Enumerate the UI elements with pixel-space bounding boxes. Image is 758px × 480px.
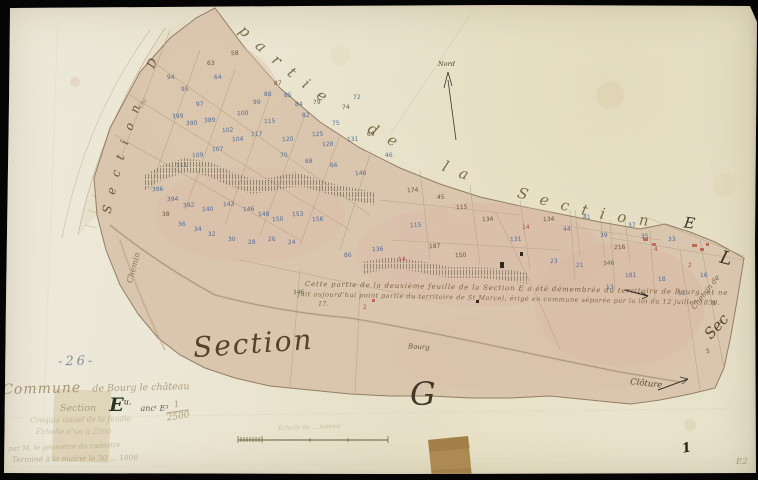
parcel-number: 390 [186,120,198,127]
parcel-number: 104 [232,136,244,143]
tape-patch [428,436,472,479]
parcel-number: 346 [293,289,305,296]
parcel-number: 150 [272,216,284,223]
parcel-number: 75 [332,120,340,127]
parcel-number: 187 [429,243,441,250]
parcel-number: 150 [455,252,467,259]
parcel-number: 69 [367,131,375,138]
scale-bar [238,436,388,443]
parcel-number: 181 [625,272,637,279]
parcel-number: 82 [302,112,310,119]
parcel-number: 64 [214,74,222,81]
parcel-number: 174 [407,187,419,194]
north-arrow [444,72,456,140]
parcel-number: 131 [510,236,522,243]
parcel-number: 68 [305,158,313,165]
north-label: Nord [438,61,455,68]
page-number: -26- [58,355,96,369]
parcel-number: 11 [678,290,686,297]
aged-paper-sheet: partie de la Section Section D Nord Sect… [0,0,758,480]
parcel-number: 9 [712,300,716,307]
parcel-number: 148 [258,211,270,218]
parcel-number: 35 [641,233,649,240]
margin-note-4: Terminé à la mairie le 30 ... 1808 [12,454,138,464]
parcel-number: 37 [628,222,636,229]
parcel-number: 125 [312,131,324,138]
parcel-number: 143 [223,201,235,208]
letter-e-label: E [683,215,696,231]
parcel-number: 392 [183,202,195,209]
parcel-number: 131 [347,136,359,143]
parcel-number: 63 [207,60,215,67]
parcel-number: 2 [688,262,692,269]
parcel-number: 111 [176,162,188,169]
parcel-number: 120 [282,136,294,143]
parcel-number: 2 [363,304,367,311]
parcel-number: 100 [237,110,249,117]
section-letter: E [109,394,123,416]
parcel-number: 396 [152,186,164,193]
parcel-number: 46 [385,152,393,159]
parcel-number: 117 [251,131,263,138]
parcel-number: 45 [437,194,445,201]
parcel-number: 79 [313,99,321,106]
parcel-number: 146 [243,206,255,213]
parcel-number: 389 [204,117,216,124]
parcel-number: 30 [228,236,236,243]
margin-note-1: Croquis visuel de la feuille [30,415,131,424]
letter-g-label: G [410,378,436,410]
parcel-number: 74 [342,104,350,111]
parcel-number: 99 [253,99,261,106]
parcel-number: 5 [706,348,710,355]
parcel-number: 28 [248,239,256,246]
section-word: Section [60,403,96,414]
parcel-number: 115 [456,204,468,211]
parcel-number: 94 [167,74,175,81]
parcel-number: 36 [178,221,186,228]
section-letter-sup: u. [124,398,132,407]
parcel-number: 87 [274,80,282,87]
parcel-number: 394 [167,196,179,203]
parcel-number: 58 [231,50,239,57]
parcel-number: 13 [606,284,614,291]
parcel-number: 102 [222,127,234,134]
parcel-number: 26 [268,236,276,243]
parcel-number: 23 [550,258,558,265]
parcel-number: 128 [322,141,334,148]
parcel-number: 16 [700,272,708,279]
parcel-number: 32 [208,231,216,238]
section-script-label: Section [192,326,314,362]
parcel-number: 72 [353,94,361,101]
parcel-number: 399 [172,113,184,120]
corner-pencil-mark: E2 [736,458,748,467]
parcel-number: 84 [295,101,303,108]
parcel-number: 24 [288,239,296,246]
parcel-number: 216 [614,244,626,251]
parcel-number: 115 [410,222,422,229]
parcel-number: 33 [668,236,676,243]
parcel-number: 134 [543,216,555,223]
parcel-number: 41 [583,214,591,221]
parcel-number: 39 [600,232,608,239]
parcel-number: 86 [344,252,352,259]
parcel-number: 97 [196,101,204,108]
margin-note-2: Échelle d'un à 2500 [36,428,111,436]
parcel-number: 85 [284,92,292,99]
parcel-number: 346 [603,260,615,267]
parcel-number: 21 [576,262,584,269]
parcel-number: 156 [312,216,324,223]
scale-fraction: 1 2500 [165,400,191,424]
parcel-number: 88 [264,91,272,98]
parcel-number: 95 [181,86,189,93]
parcel-number: 134 [482,216,494,223]
parcel-number: 44 [563,226,571,233]
parcel-number: 66 [330,162,338,169]
parcel-number: 34 [194,226,202,233]
parcel-number: 14 [522,224,530,231]
parcel-number: 153 [292,211,304,218]
parcel-number: 140 [202,206,214,213]
parcel-number: 136 [372,246,384,253]
parcel-number: 115 [264,118,276,125]
parcel-number: 38 [162,211,170,218]
parcel-number: 4 [654,246,658,253]
annotation-line3: 17. [318,301,328,308]
parcel-number: 107 [212,146,224,153]
scanned-map-page: { "document": { "page_number": "-26-", "… [0,0,758,480]
parcel-number: 146 [355,170,367,177]
parcel-number: 18 [658,276,666,283]
parcel-number: 109 [192,152,204,159]
parcel-number: 14 [398,256,406,263]
section-title: Section Eu. ancᵗ E³ [60,396,169,415]
bourg-label: Bourg [408,343,430,351]
parcel-number: 7 [718,320,722,327]
parcel-number: 70 [280,152,288,159]
